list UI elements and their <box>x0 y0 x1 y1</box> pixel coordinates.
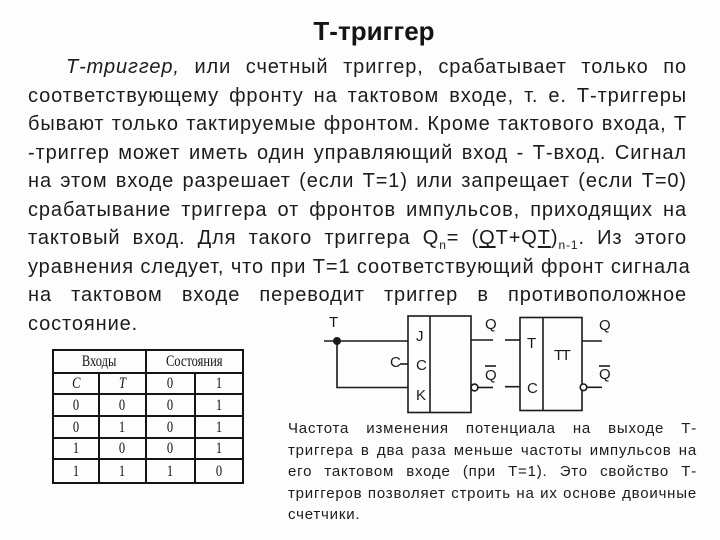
svg-text:Q: Q <box>599 366 611 383</box>
svg-text:ТТ: ТТ <box>554 347 571 364</box>
svg-text:Q: Q <box>485 367 497 384</box>
svg-text:C: C <box>390 354 401 371</box>
svg-text:Т: Т <box>329 314 338 331</box>
svg-text:J: J <box>416 328 424 345</box>
svg-text:T: T <box>527 335 536 352</box>
svg-text:Q: Q <box>599 317 611 334</box>
svg-text:C: C <box>527 380 538 397</box>
svg-text:C: C <box>416 357 427 374</box>
svg-text:K: K <box>416 387 426 404</box>
svg-text:Q: Q <box>485 316 497 333</box>
